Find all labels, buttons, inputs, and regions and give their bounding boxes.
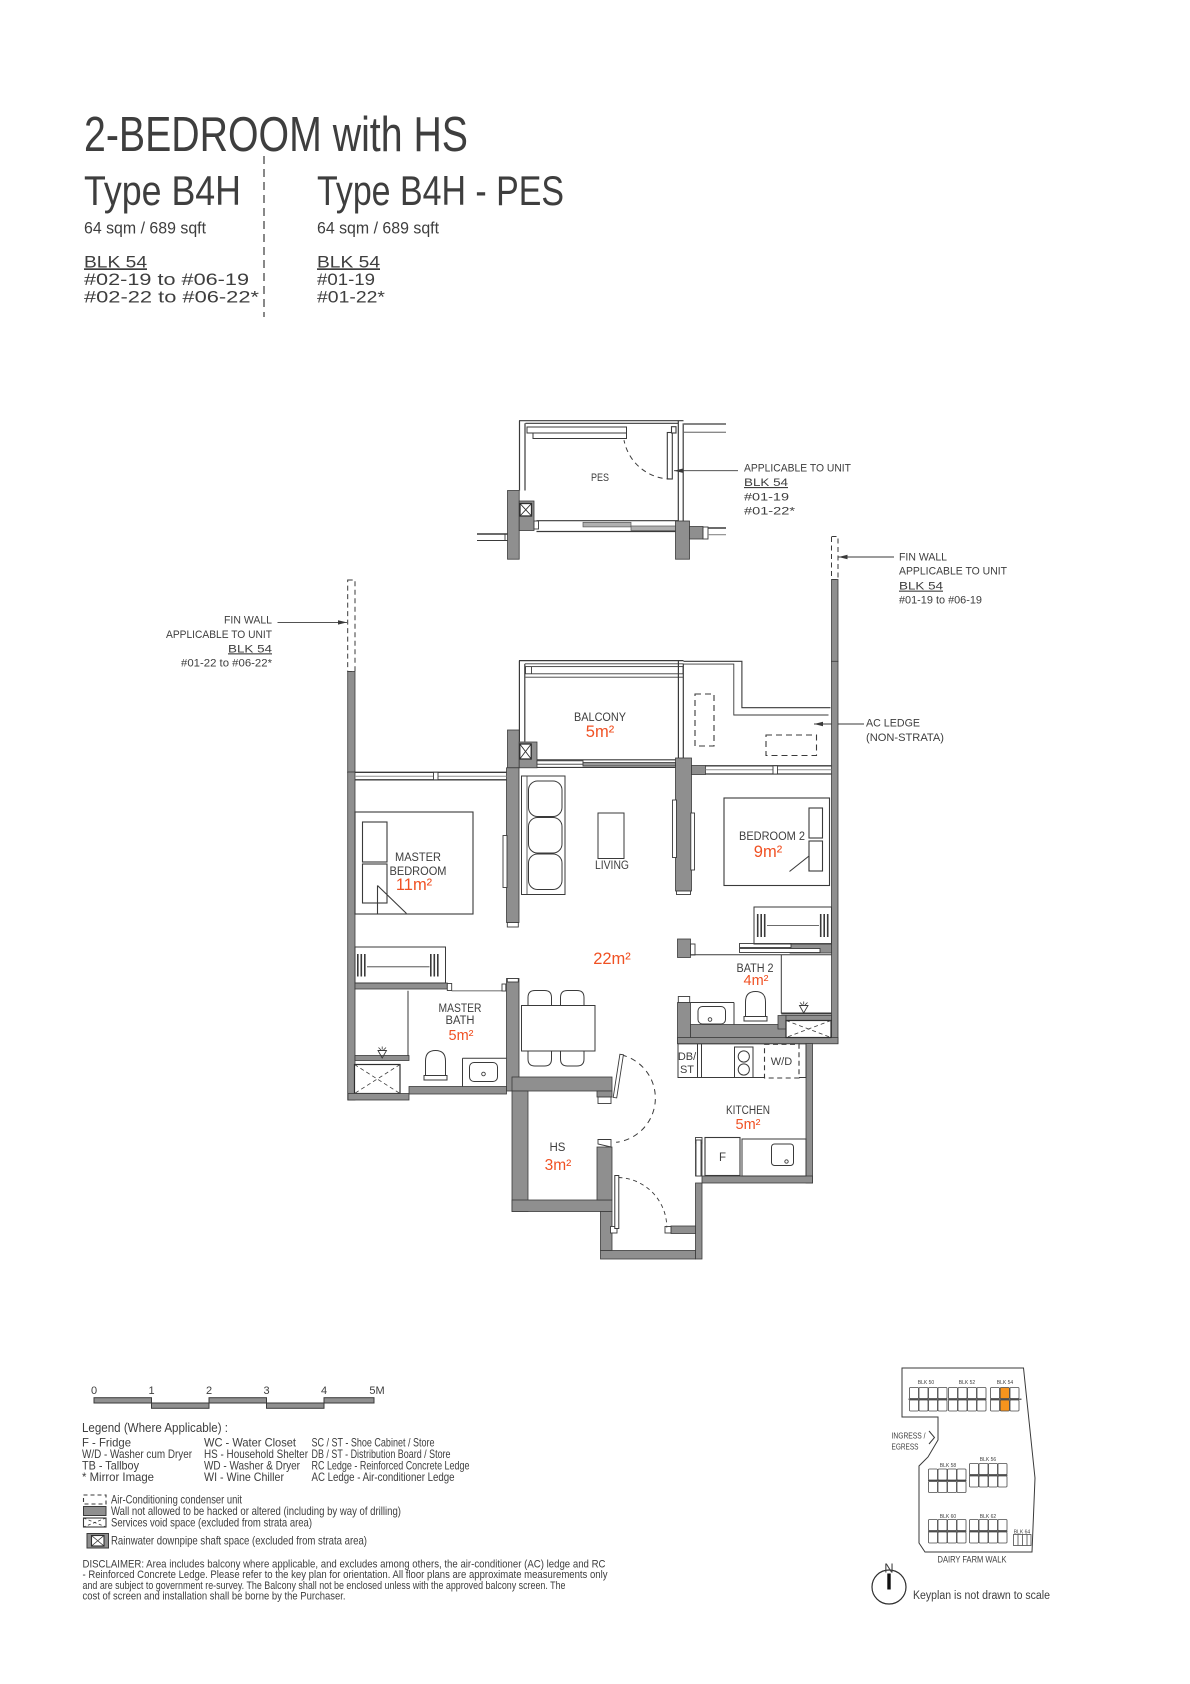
svg-text:BLK 54: BLK 54 <box>899 581 943 593</box>
svg-text:BATH: BATH <box>446 1015 475 1027</box>
svg-text:AC Ledge - Air-conditioner Led: AC Ledge - Air-conditioner Ledge <box>312 1470 455 1484</box>
svg-text:#02-19 to #06-19: #02-19 to #06-19 <box>84 270 249 289</box>
svg-text:5m²: 5m² <box>736 1117 761 1133</box>
svg-text:F: F <box>719 1152 726 1164</box>
svg-text:FIN WALL: FIN WALL <box>224 615 272 627</box>
svg-text:PES: PES <box>591 472 609 484</box>
svg-text:Keyplan is not drawn to scale: Keyplan is not drawn to scale <box>913 1590 1050 1602</box>
svg-text:4m²: 4m² <box>744 973 769 989</box>
svg-text:HS: HS <box>550 1142 566 1154</box>
svg-text:N: N <box>884 1561 893 1576</box>
svg-text:Rainwater downpipe shaft space: Rainwater downpipe shaft space (excluded… <box>111 1534 367 1548</box>
svg-text:0: 0 <box>91 1385 97 1397</box>
svg-text:BLK 54: BLK 54 <box>997 1380 1014 1386</box>
svg-text:WI - Wine Chiller: WI - Wine Chiller <box>204 1470 284 1484</box>
svg-text:ST: ST <box>680 1064 694 1076</box>
svg-text:#01-22*: #01-22* <box>744 506 796 518</box>
svg-text:LIVING: LIVING <box>595 860 629 872</box>
svg-text:KITCHEN: KITCHEN <box>726 1105 770 1117</box>
svg-text:INGRESS /: INGRESS / <box>892 1431 927 1441</box>
svg-text:2: 2 <box>206 1385 212 1397</box>
svg-text:64 sqm / 689 sqft: 64 sqm / 689 sqft <box>84 219 206 238</box>
svg-text:64 sqm / 689 sqft: 64 sqm / 689 sqft <box>317 219 439 238</box>
svg-text:DAIRY FARM WALK: DAIRY FARM WALK <box>938 1555 1008 1566</box>
svg-text:FIN WALL: FIN WALL <box>899 551 947 563</box>
svg-text:BEDROOM 2: BEDROOM 2 <box>739 831 805 843</box>
svg-text:5m²: 5m² <box>586 723 615 741</box>
svg-text:BLK 54: BLK 54 <box>84 252 147 271</box>
svg-text:#01-22*: #01-22* <box>317 287 385 306</box>
svg-text:APPLICABLE TO UNIT: APPLICABLE TO UNIT <box>744 463 851 475</box>
svg-text:BLK 58: BLK 58 <box>940 1463 957 1469</box>
svg-text:W/D: W/D <box>771 1056 792 1068</box>
svg-text:Type B4H - PES: Type B4H - PES <box>317 167 564 214</box>
svg-text:EGRESS: EGRESS <box>892 1442 919 1452</box>
svg-text:DB/: DB/ <box>678 1051 697 1063</box>
svg-text:4: 4 <box>321 1385 327 1397</box>
svg-text:BLK 54: BLK 54 <box>317 252 380 271</box>
svg-text:Type B4H: Type B4H <box>84 167 241 214</box>
svg-text:#02-22 to #06-22*: #02-22 to #06-22* <box>84 287 259 306</box>
svg-text:BLK 54: BLK 54 <box>228 643 272 655</box>
svg-text:5m²: 5m² <box>449 1028 474 1044</box>
svg-text:Services void space (excluded: Services void space (excluded from strat… <box>111 1516 312 1530</box>
svg-text:APPLICABLE TO UNIT: APPLICABLE TO UNIT <box>166 629 272 641</box>
svg-text:cost of screen and installatio: cost of screen and installation shall be… <box>83 1591 346 1603</box>
svg-text:BLK 52: BLK 52 <box>959 1380 976 1386</box>
svg-text:9m²: 9m² <box>754 843 783 861</box>
svg-text:BLK 56: BLK 56 <box>980 1457 997 1463</box>
svg-text:BLK 50: BLK 50 <box>918 1380 935 1386</box>
svg-text:MASTER: MASTER <box>395 852 441 864</box>
svg-text:1: 1 <box>148 1385 154 1397</box>
svg-text:3: 3 <box>263 1385 269 1397</box>
svg-text:AC LEDGE: AC LEDGE <box>866 718 920 730</box>
svg-text:5M: 5M <box>369 1385 384 1397</box>
svg-text:22m²: 22m² <box>593 950 631 968</box>
svg-text:BLK 54: BLK 54 <box>744 477 788 489</box>
svg-text:#01-19: #01-19 <box>744 491 789 503</box>
svg-text:MASTER: MASTER <box>439 1003 482 1015</box>
svg-text:3m²: 3m² <box>545 1157 572 1174</box>
svg-text:2-BEDROOM with HS: 2-BEDROOM with HS <box>84 108 468 162</box>
svg-text:#01-22 to #06-22*: #01-22 to #06-22* <box>181 658 273 670</box>
svg-text:(NON-STRATA): (NON-STRATA) <box>866 732 944 744</box>
svg-text:#01-19 to #06-19: #01-19 to #06-19 <box>899 595 982 607</box>
svg-text:11m²: 11m² <box>396 876 433 894</box>
svg-text:#01-19: #01-19 <box>317 270 375 289</box>
svg-text:* Mirror Image: * Mirror Image <box>82 1470 154 1484</box>
svg-text:APPLICABLE TO UNIT: APPLICABLE TO UNIT <box>899 566 1007 578</box>
svg-text:Legend (Where Applicable) :: Legend (Where Applicable) : <box>82 1420 228 1435</box>
